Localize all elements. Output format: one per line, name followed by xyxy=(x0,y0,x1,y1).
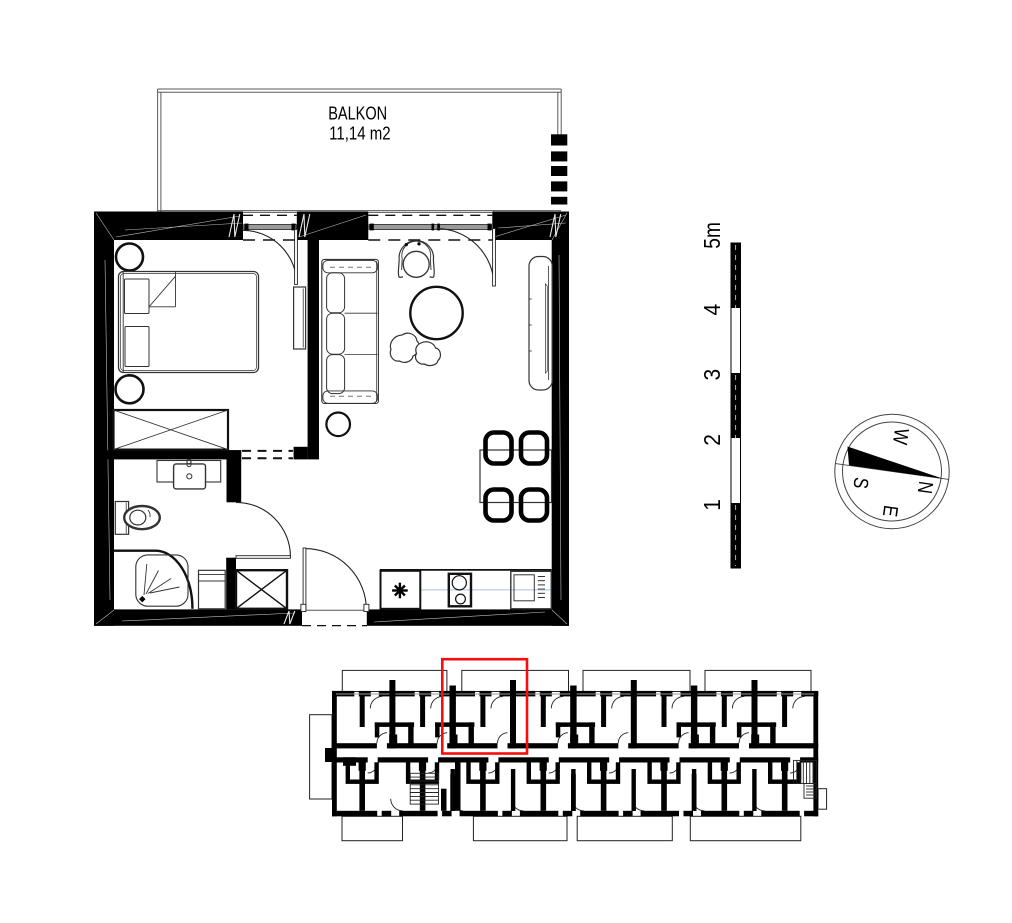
svg-text:2: 2 xyxy=(699,434,725,446)
svg-text:4: 4 xyxy=(699,304,725,316)
svg-text:5m: 5m xyxy=(699,222,725,249)
svg-text:3: 3 xyxy=(699,369,725,381)
svg-text:11,14 m2: 11,14 m2 xyxy=(329,124,391,144)
svg-text:BALKON: BALKON xyxy=(328,103,387,123)
svg-text:1: 1 xyxy=(699,499,725,511)
